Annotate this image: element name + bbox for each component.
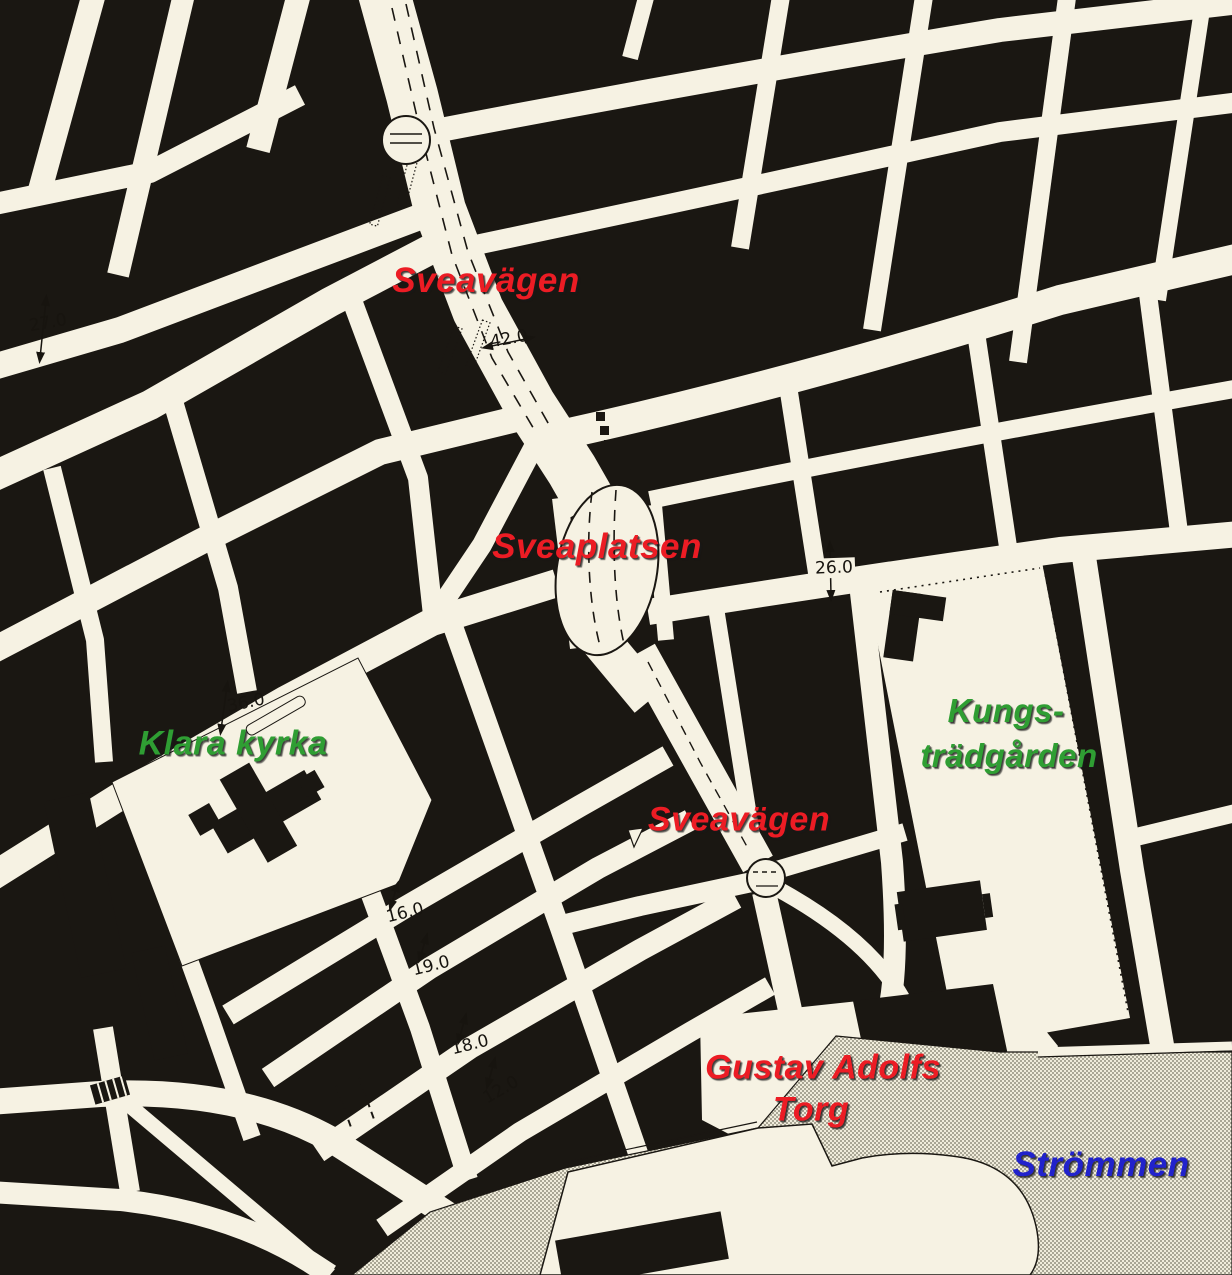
measurement-26: 26.0 (813, 557, 856, 578)
label-sveavagen-south: Sveavägen (648, 801, 830, 840)
label-strommen: Strömmen (1012, 1145, 1189, 1185)
label-sveaplatsen: Sveaplatsen (492, 527, 702, 567)
map-drawing (0, 0, 1232, 1275)
label-gustav-adolfs-line1: Gustav Adolfs (705, 1049, 941, 1088)
label-kungstradgarden-line2: trädgården (920, 737, 1097, 775)
label-kungstradgarden-line1: Kungs- (948, 692, 1065, 730)
label-klara-kyrka: Klara kyrka (139, 725, 328, 764)
label-gustav-adolfs-line2: Torg (773, 1091, 849, 1130)
roundabout-south (747, 859, 785, 897)
map-canvas: 27.0 42.0 36.0 26.0 16.0 19.0 18.0 12.0 … (0, 0, 1232, 1275)
label-sveavagen-north: Sveavägen (392, 261, 579, 301)
roundabout-north (382, 116, 430, 164)
